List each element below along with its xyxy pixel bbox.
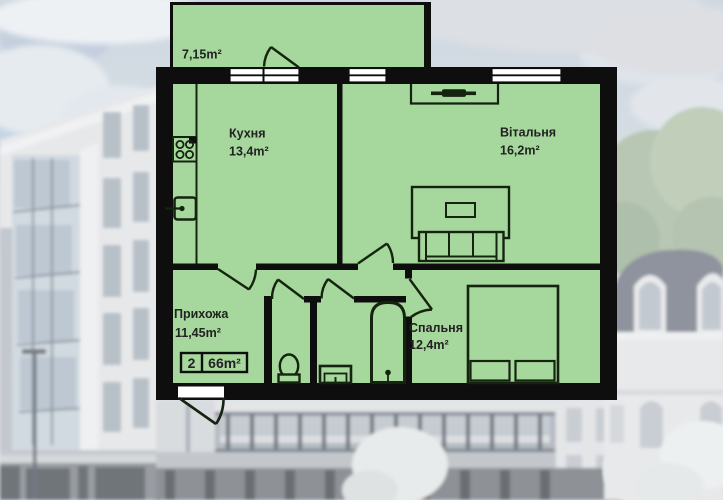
svg-text:Кухня: Кухня: [229, 127, 266, 141]
svg-text:11,45m²: 11,45m²: [175, 326, 221, 340]
svg-text:13,4m²: 13,4m²: [229, 145, 269, 159]
svg-text:Прихожа: Прихожа: [174, 307, 229, 321]
svg-text:12,4m²: 12,4m²: [409, 338, 449, 352]
svg-text:7,15m²: 7,15m²: [182, 48, 222, 62]
svg-text:2: 2: [188, 355, 196, 371]
svg-text:16,2m²: 16,2m²: [500, 144, 540, 158]
svg-text:66m²: 66m²: [208, 355, 241, 371]
svg-text:Вітальня: Вітальня: [500, 126, 556, 140]
svg-text:Спальня: Спальня: [409, 321, 463, 335]
